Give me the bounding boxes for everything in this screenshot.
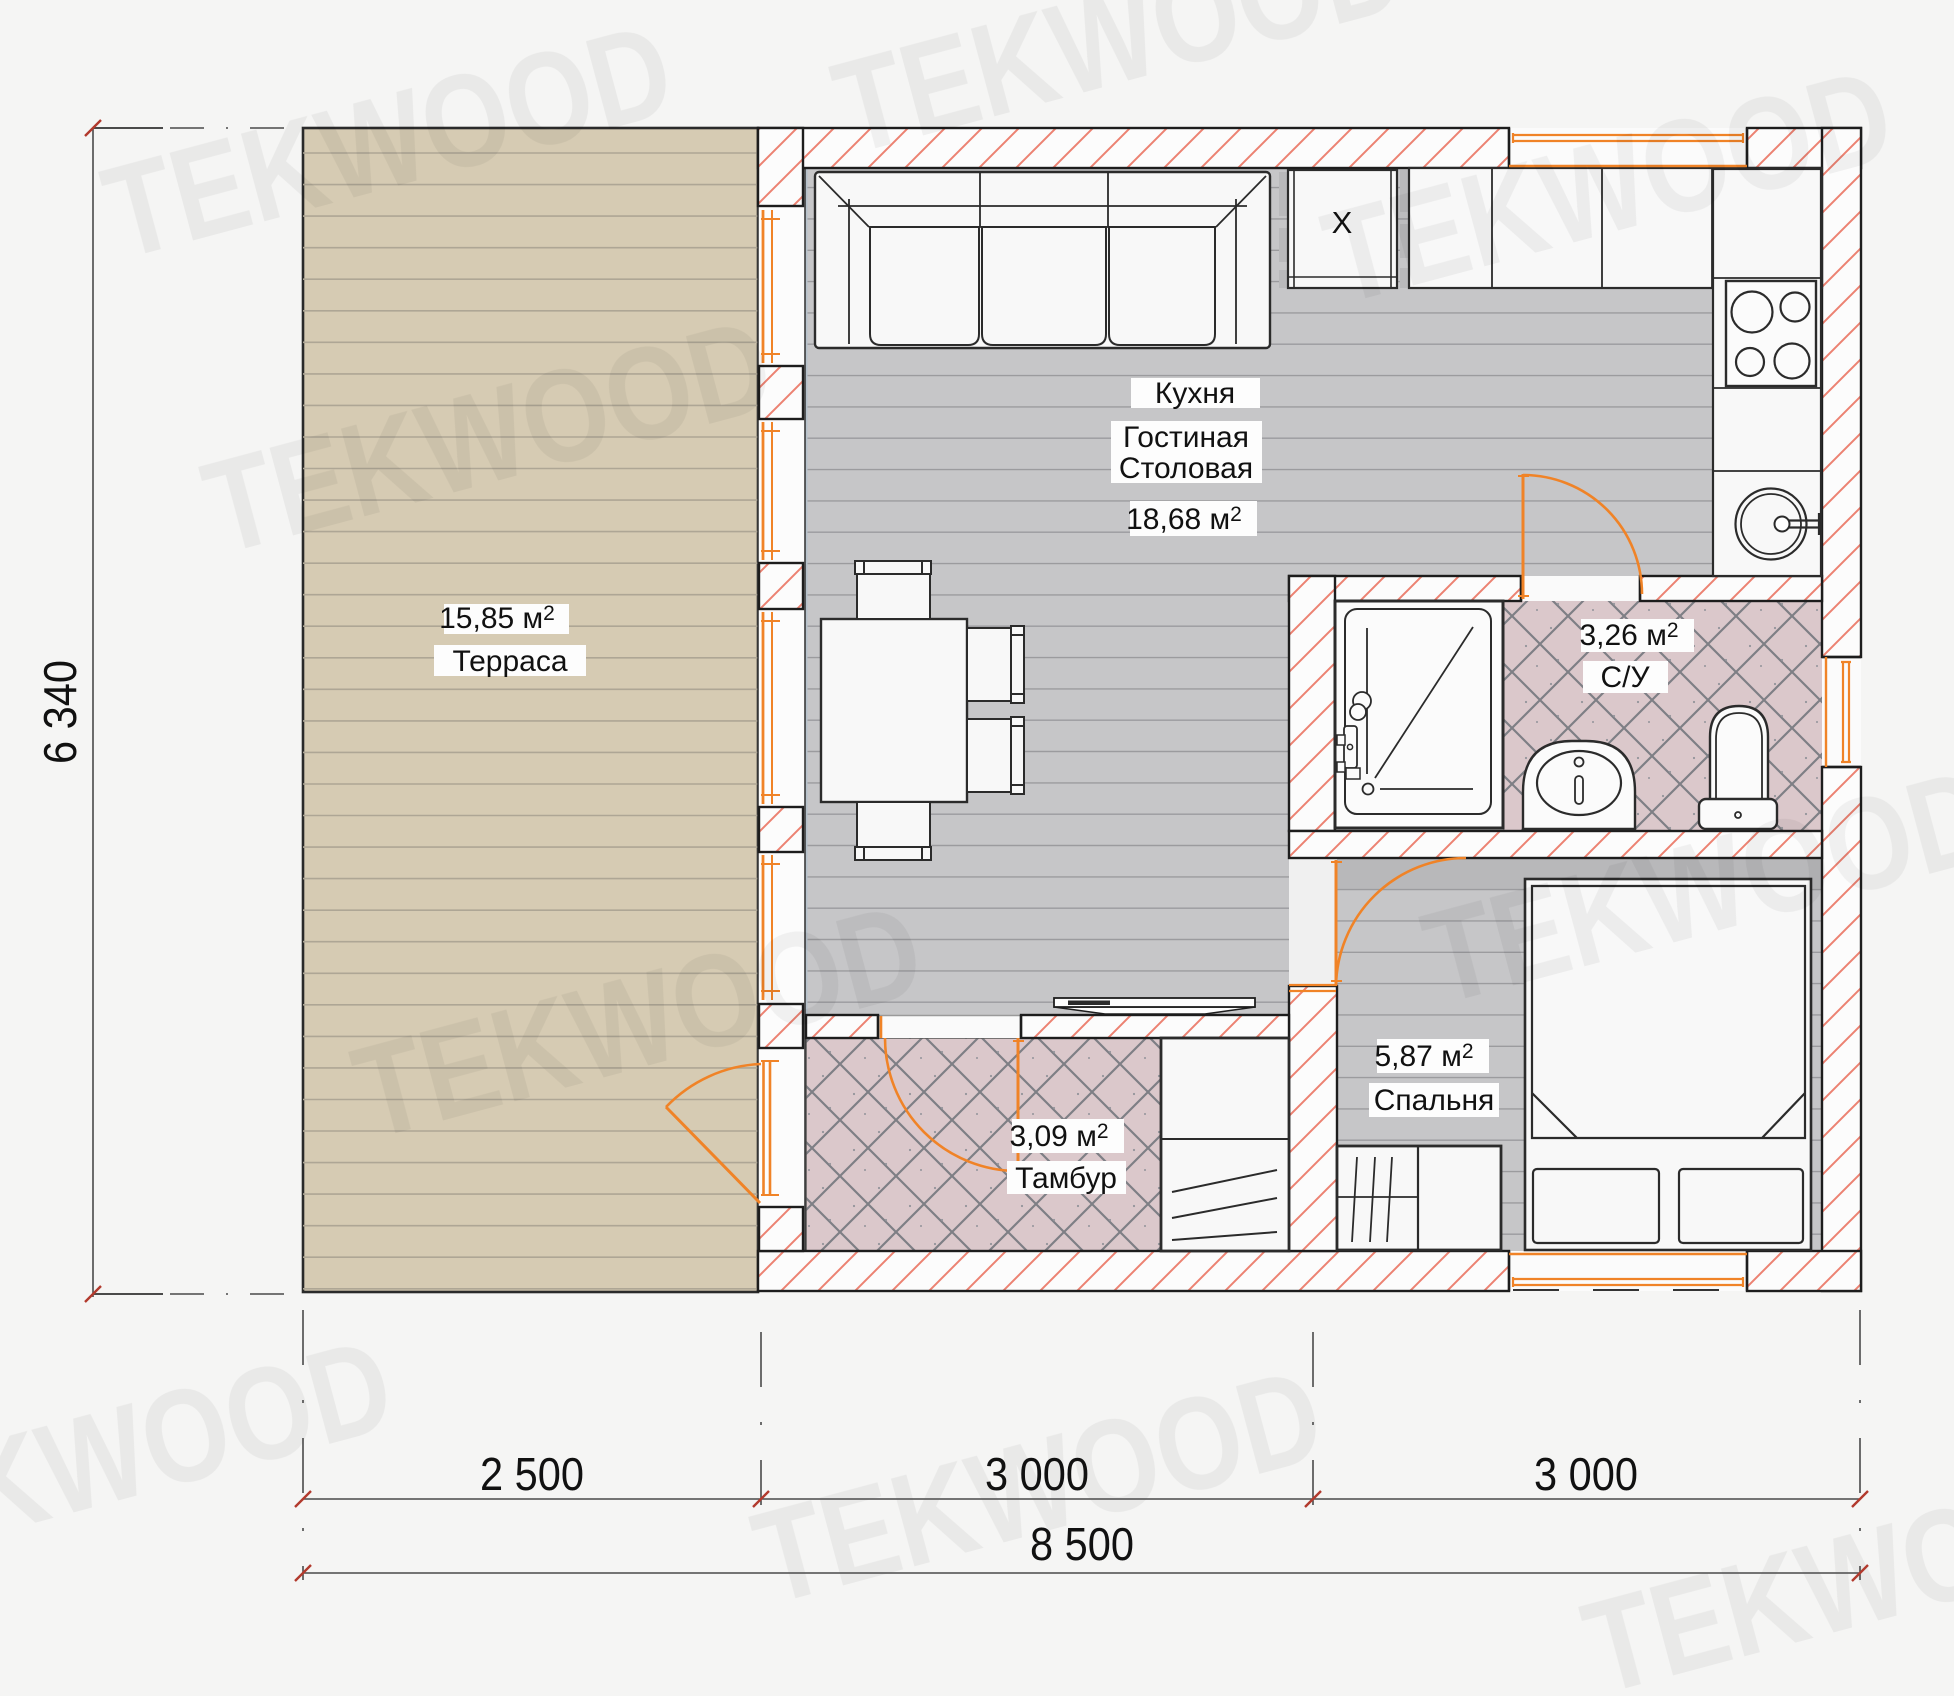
svg-text:Гостиная: Гостиная <box>1123 421 1249 454</box>
svg-text:15,85 м2: 15,85 м2 <box>439 602 555 635</box>
svg-text:3 000: 3 000 <box>985 1448 1089 1500</box>
svg-text:3,09 м2: 3,09 м2 <box>1009 1120 1108 1153</box>
svg-text:6 340: 6 340 <box>34 660 86 764</box>
svg-text:Кухня: Кухня <box>1155 377 1235 410</box>
svg-text:2 500: 2 500 <box>480 1448 584 1500</box>
svg-text:3 000: 3 000 <box>1534 1448 1638 1500</box>
svg-text:Спальня: Спальня <box>1374 1084 1495 1117</box>
svg-text:8 500: 8 500 <box>1030 1518 1134 1570</box>
svg-text:18,68 м2: 18,68 м2 <box>1126 503 1242 536</box>
svg-text:Терраса: Терраса <box>452 645 567 678</box>
svg-text:Тамбур: Тамбур <box>1015 1162 1117 1195</box>
svg-text:5,87 м2: 5,87 м2 <box>1374 1040 1473 1073</box>
svg-text:3,26 м2: 3,26 м2 <box>1579 619 1678 652</box>
svg-text:С/У: С/У <box>1600 661 1650 694</box>
svg-text:Столовая: Столовая <box>1119 452 1253 485</box>
